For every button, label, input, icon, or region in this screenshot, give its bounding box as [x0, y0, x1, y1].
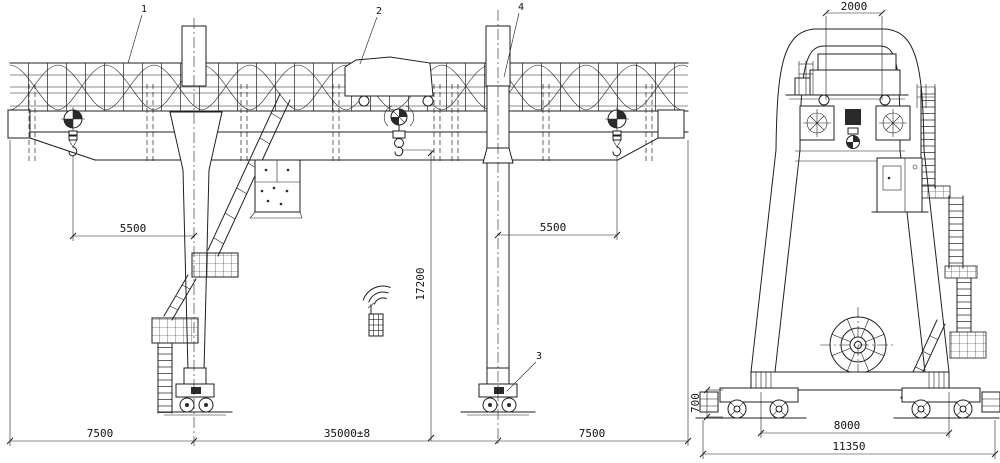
dim-text-7500-right: 7500 — [579, 427, 606, 440]
dim-rail-chain: 7500 35000±8 7500 — [7, 140, 691, 446]
electrical-cabinet — [250, 160, 302, 218]
dim-text-span: 35000±8 — [324, 427, 370, 440]
callout-3: 3 — [536, 351, 542, 362]
dim-text-11350: 11350 — [832, 440, 865, 453]
dim-left-hook-approach: 5500 — [70, 156, 197, 241]
side-ladder-stack — [918, 88, 986, 358]
dim-text-700: 700 — [689, 393, 702, 413]
stairs-and-platforms — [152, 94, 290, 413]
hoist-hook-icon — [845, 109, 861, 149]
front-view: 5500 5500 17200 7500 35000±8 7500 — [0, 2, 730, 446]
hook-limit-icon — [61, 107, 85, 156]
callout-2: 2 — [376, 6, 382, 17]
dim-text-17200: 17200 — [414, 267, 427, 300]
dim-text-5500-left: 5500 — [120, 222, 147, 235]
side-cabinet — [872, 158, 928, 212]
dim-text-8000: 8000 — [834, 419, 861, 432]
dim-right-hook-approach: 5500 — [495, 156, 620, 240]
callout-4: 4 — [518, 2, 524, 13]
side-view: 2000 700 8000 11350 — [689, 0, 1000, 459]
dim-text-5500-right: 5500 — [540, 221, 567, 234]
dim-text-7500-left: 7500 — [87, 427, 114, 440]
main-hoist-hook-icon — [384, 106, 414, 156]
sill-beam — [751, 372, 949, 390]
gantry-crane-drawing: 5500 5500 17200 7500 35000±8 7500 — [0, 0, 1000, 463]
drawing-canvas: 5500 5500 17200 7500 35000±8 7500 — [0, 0, 1000, 463]
dim-text-2000: 2000 — [841, 0, 868, 13]
callout-1: 1 — [141, 4, 147, 15]
remote-control-icon — [363, 286, 390, 336]
dim-lifting-height: 17200 — [403, 150, 434, 441]
side-bogies — [696, 388, 1000, 418]
